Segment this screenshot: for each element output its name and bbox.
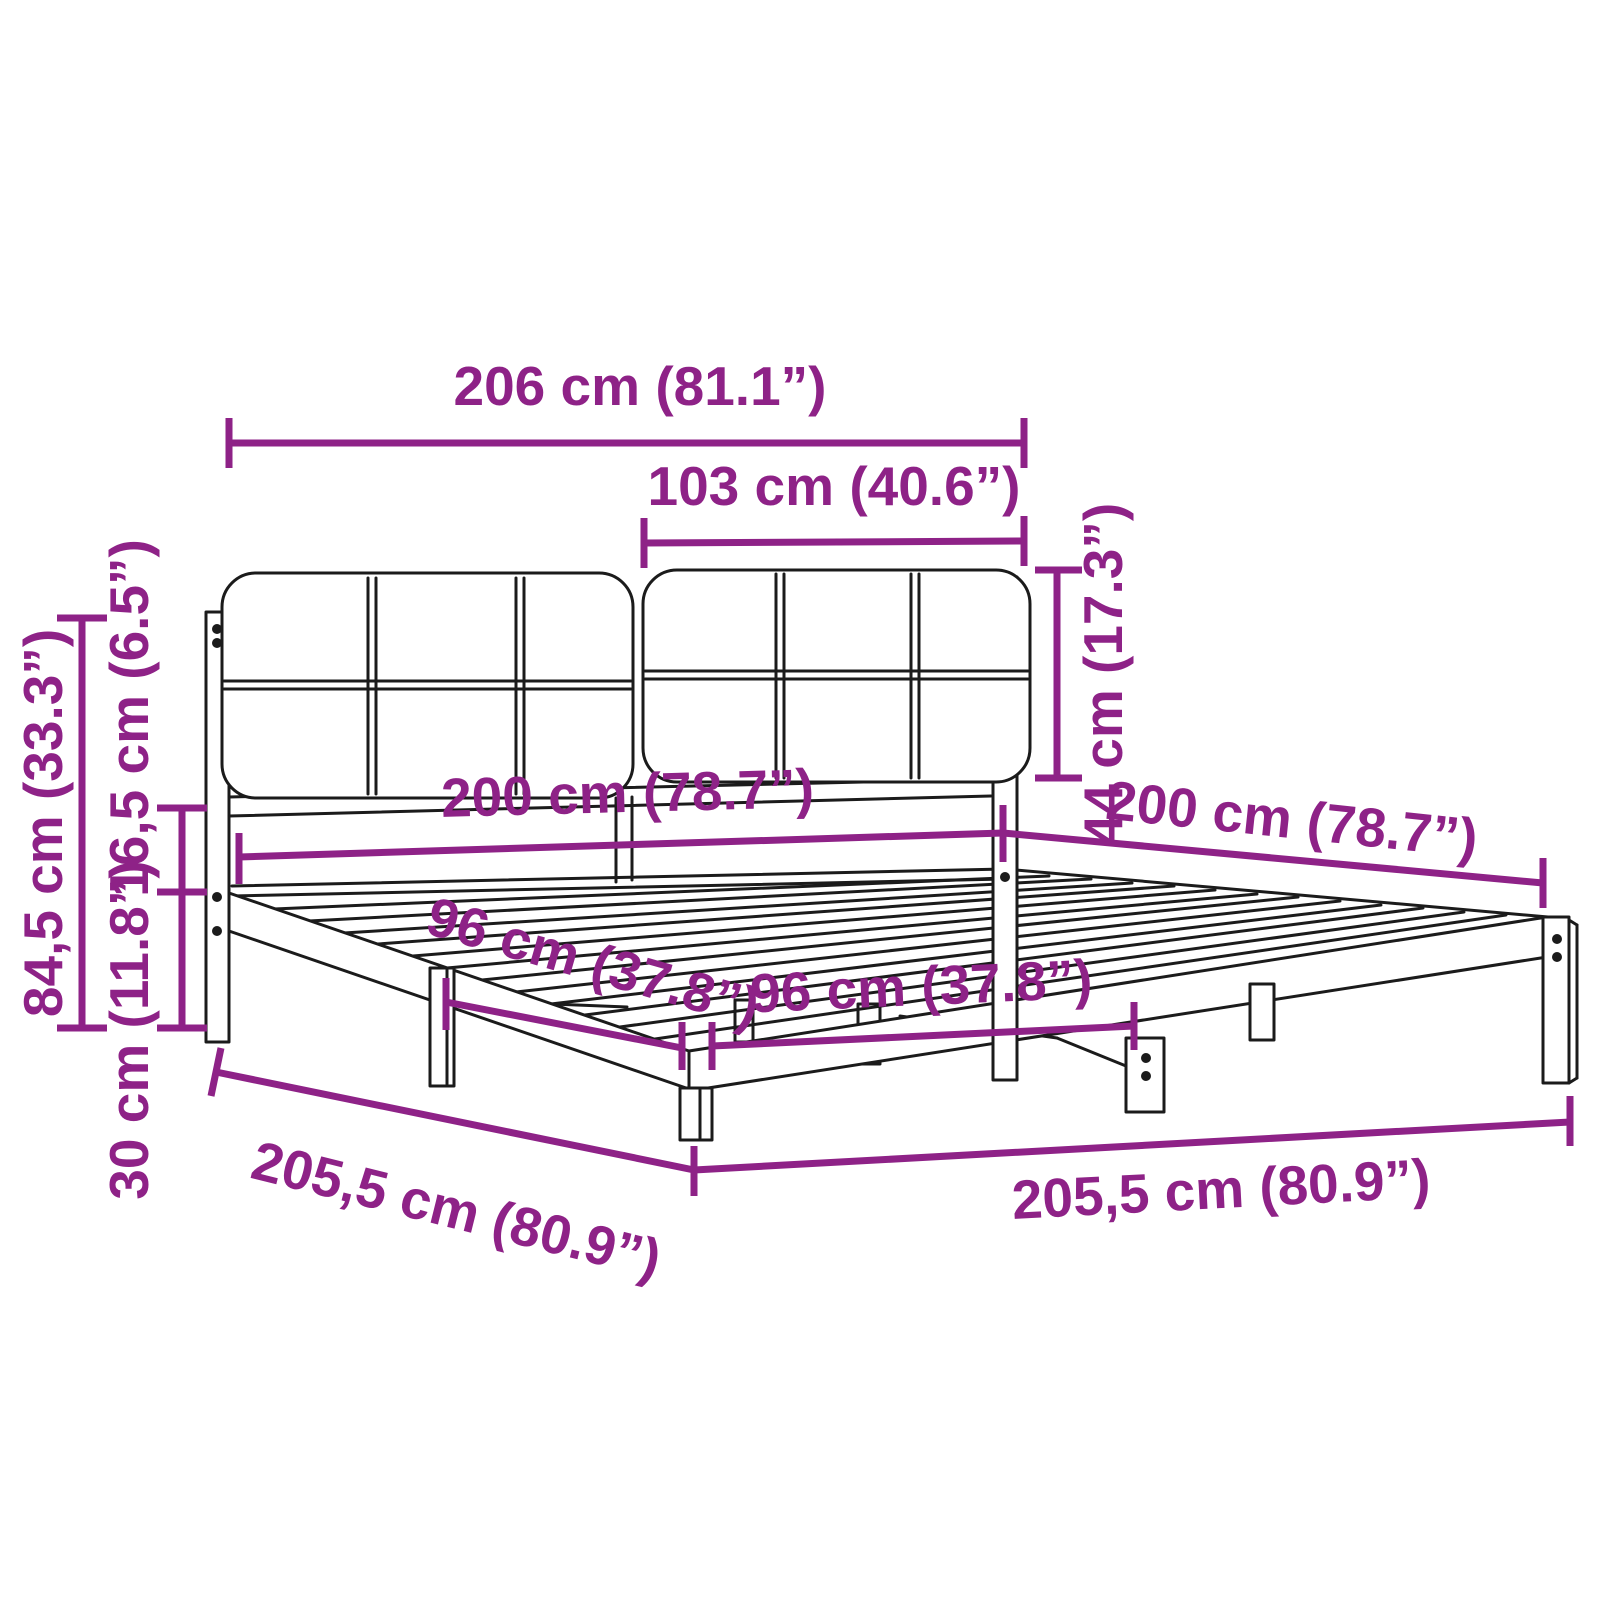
dim-line-headboard-half-width <box>644 516 1024 568</box>
bed-frame-diagram-canvas: 206 cm (81.1”) 103 cm (40.6”) 44 cm (17.… <box>0 0 1600 1600</box>
dimension-diagram: 206 cm (81.1”) 103 cm (40.6”) 44 cm (17.… <box>0 0 1600 1600</box>
dimension-labels: 206 cm (81.1”) 103 cm (40.6”) 44 cm (17.… <box>12 355 1481 1290</box>
dim-label-bed-length: 200 cm (78.7”) <box>1103 769 1480 870</box>
dim-label-headboard-half-width: 103 cm (40.6”) <box>648 455 1021 517</box>
dim-label-bed-width: 200 cm (78.7”) <box>440 757 814 829</box>
dim-label-total-width: 206 cm (81.1”) <box>454 355 827 417</box>
dim-label-base-height: 30 cm (11.8”) <box>98 860 160 1199</box>
dim-label-rail-height: 16,5 cm (6.5”) <box>98 539 160 897</box>
dim-line-rail-and-base-height <box>157 808 207 1028</box>
dim-label-total-height: 84,5 cm (33.3”) <box>12 629 74 1017</box>
dim-label-frame-width: 205,5 cm (80.9”) <box>1010 1147 1432 1231</box>
